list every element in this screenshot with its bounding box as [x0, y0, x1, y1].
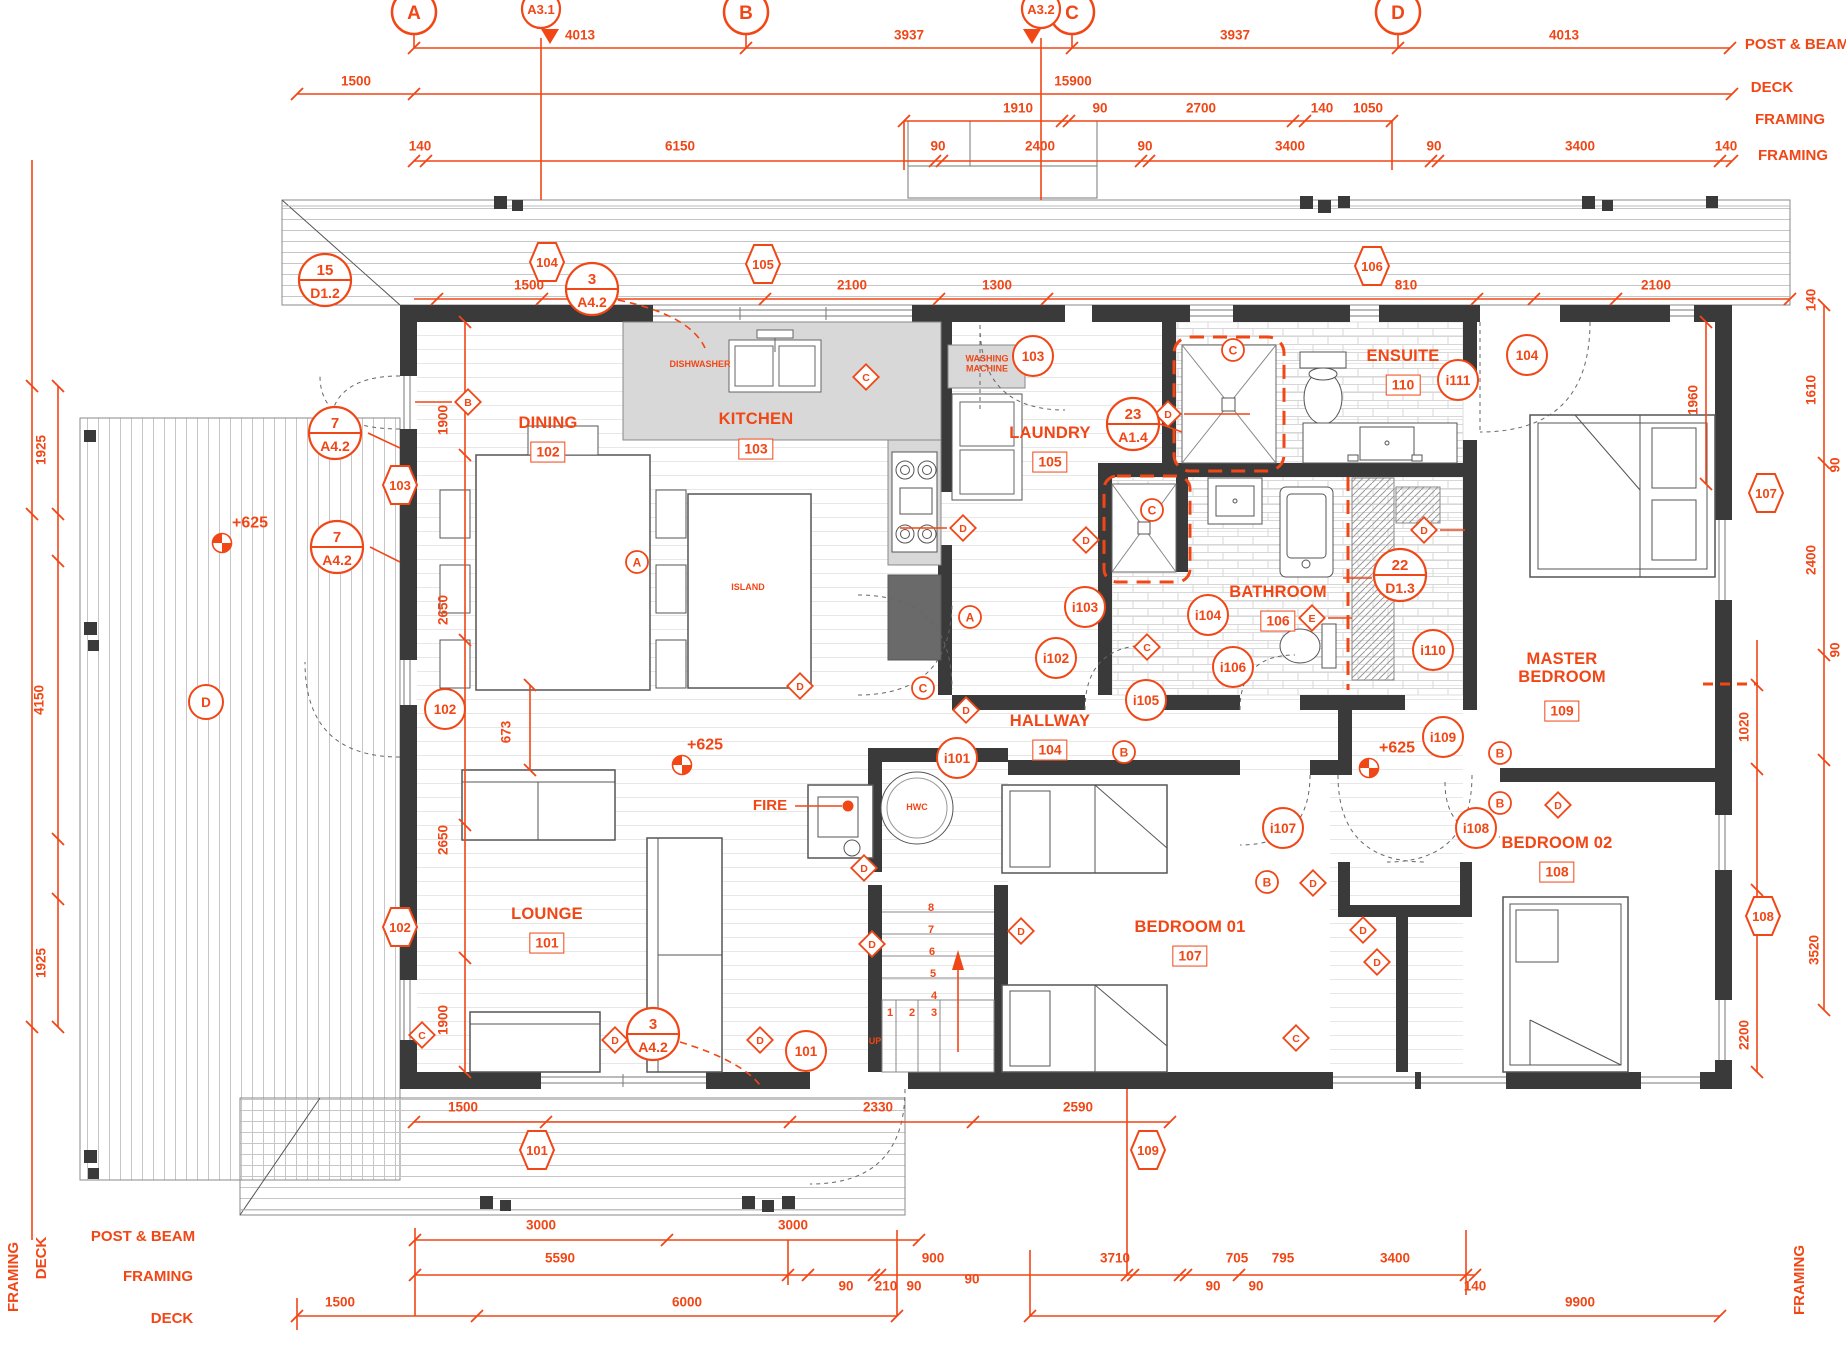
tag-hex-104: 104	[528, 241, 566, 283]
label-deck: DECK	[151, 1311, 194, 1327]
dim-140: 140	[1715, 140, 1738, 155]
dim-3400: 3400	[1275, 140, 1305, 155]
dim-4150: 4150	[33, 685, 48, 715]
tag-diamond-b: B	[453, 387, 483, 417]
svg-text:D: D	[611, 1035, 619, 1047]
dim-5590: 5590	[545, 1252, 575, 1267]
svg-text:C: C	[1148, 504, 1157, 518]
dim-1925: 1925	[35, 948, 50, 978]
dim-795: 795	[1272, 1252, 1295, 1267]
room-number-101: 101	[529, 933, 564, 954]
dim-2650: 2650	[437, 825, 452, 855]
svg-text:D: D	[1017, 926, 1025, 938]
dim-90: 90	[1829, 642, 1844, 657]
dim-90: 90	[1829, 457, 1844, 472]
tag-circle-i103: i103	[1063, 585, 1107, 629]
detail-bubble-22-d1-3: 22D1.3	[1371, 546, 1429, 604]
tag-hex-109: 109	[1129, 1129, 1167, 1171]
tag-diamond-c: C	[851, 362, 881, 392]
svg-text:D: D	[796, 681, 804, 693]
tag-diamond-d: D	[857, 929, 887, 959]
label-dishwasher: DISHWASHER	[669, 360, 730, 370]
svg-text:A3.1: A3.1	[527, 2, 554, 17]
detail-bubble-15-d1-2: 15D1.2	[296, 251, 354, 309]
tag-diamond-d: D	[745, 1025, 775, 1055]
svg-text:D: D	[959, 523, 967, 535]
floor-plan-drawing: ABCDA3.1A3.24013393739374013150015900191…	[0, 0, 1846, 1356]
label-8: 8	[928, 903, 934, 915]
tag-circle-i110: i110	[1411, 628, 1455, 672]
svg-text:C: C	[1292, 1033, 1300, 1045]
tag-diamond-e: E	[1297, 603, 1327, 633]
svg-text:103: 103	[389, 478, 411, 493]
dim-705: 705	[1226, 1252, 1249, 1267]
dim-90: 90	[906, 1280, 921, 1295]
room-label-laundry: LAUNDRY	[1009, 425, 1090, 443]
svg-text:i110: i110	[1420, 643, 1446, 658]
svg-text:B: B	[1263, 876, 1272, 890]
label-1: 1	[887, 1008, 893, 1020]
room-number-102: 102	[530, 442, 565, 463]
grid-bubble-b: B	[721, 0, 771, 37]
room-label-ensuite: ENSUITE	[1367, 348, 1440, 366]
dim-1500: 1500	[341, 75, 371, 90]
tag-diamond-d: D	[1409, 515, 1439, 545]
detail-bubble-3-a4-2: 3A4.2	[563, 260, 621, 318]
dim-90: 90	[1426, 140, 1441, 155]
dim-673: 673	[500, 721, 515, 744]
grid-bubble-a: A	[389, 0, 439, 37]
dim-90: 90	[930, 140, 945, 155]
dim-1300: 1300	[982, 279, 1012, 294]
level-marker-icon	[670, 753, 694, 777]
label-4: 4	[931, 991, 937, 1003]
svg-text:A: A	[633, 556, 642, 570]
dim-1500: 1500	[325, 1296, 355, 1311]
room-label-hallway: HALLWAY	[1010, 713, 1091, 731]
svg-text:A3.2: A3.2	[1027, 2, 1054, 17]
svg-text:D: D	[1359, 925, 1367, 937]
level-marker-icon	[1357, 756, 1381, 780]
dim-2590: 2590	[1063, 1101, 1093, 1116]
tag-circle-i111: i111	[1436, 358, 1480, 402]
dim-15900: 15900	[1054, 75, 1092, 90]
tag-circle-i109: i109	[1421, 715, 1465, 759]
detail-bubble-7-a4-2: 7A4.2	[308, 518, 366, 576]
dim-90: 90	[1205, 1280, 1220, 1295]
dim-90: 90	[1137, 140, 1152, 155]
dim-2100: 2100	[1641, 279, 1671, 294]
dim-140: 140	[409, 140, 432, 155]
svg-text:D: D	[1164, 409, 1172, 421]
room-label-bedroom-01: BEDROOM 01	[1134, 919, 1245, 937]
svg-text:B: B	[739, 3, 753, 24]
svg-text:i107: i107	[1270, 821, 1296, 836]
tag-diamond-d: D	[1362, 947, 1392, 977]
svg-text:D: D	[860, 863, 868, 875]
dim-1900: 1900	[437, 1005, 452, 1035]
grid-bubble-d: D	[1373, 0, 1423, 37]
label-post-beam: POST & BEAM	[1745, 37, 1846, 53]
dim-1610: 1610	[1805, 375, 1820, 405]
svg-text:101: 101	[795, 1044, 818, 1059]
tag-letter-c: C	[910, 675, 936, 701]
svg-text:3: 3	[588, 271, 596, 288]
dim-1020: 1020	[1738, 712, 1753, 742]
tag-diamond-d: D	[1298, 868, 1328, 898]
label-hwc: HWC	[906, 803, 928, 813]
label-deck: DECK	[34, 1237, 50, 1280]
svg-text:105: 105	[752, 257, 774, 272]
tag-diamond-d: D	[1071, 525, 1101, 555]
svg-text:104: 104	[1516, 348, 1539, 363]
tag-letter-b: B	[1111, 739, 1137, 765]
svg-text:A: A	[966, 611, 975, 625]
svg-text:D: D	[756, 1035, 764, 1047]
room-number-110: 110	[1386, 375, 1421, 396]
svg-text:22: 22	[1392, 557, 1409, 574]
svg-text:C: C	[919, 682, 928, 696]
dim-3400: 3400	[1565, 140, 1595, 155]
svg-text:D: D	[1391, 3, 1405, 24]
svg-text:i103: i103	[1072, 600, 1099, 615]
dim-90: 90	[1092, 102, 1107, 117]
dim-90: 90	[964, 1273, 979, 1288]
tag-diamond-d: D	[1006, 916, 1036, 946]
tag-circle-102: 102	[423, 687, 467, 731]
tag-hex-108: 108	[1744, 895, 1782, 937]
dim-2400: 2400	[1805, 545, 1820, 575]
tag-hex-106: 106	[1353, 245, 1391, 287]
tag-letter-a: A	[624, 549, 650, 575]
svg-text:D1.3: D1.3	[1385, 580, 1415, 596]
dim-2400: 2400	[1025, 140, 1055, 155]
dim-1960: 1960	[1687, 385, 1702, 415]
label-7: 7	[928, 925, 934, 937]
tag-letter-c: C	[1220, 337, 1246, 363]
svg-text:15: 15	[317, 262, 334, 279]
tag-letter-a: A	[957, 604, 983, 630]
detail-bubble-7-a4-2: 7A4.2	[306, 404, 364, 462]
svg-text:B: B	[1496, 747, 1505, 761]
room-number-104: 104	[1032, 740, 1067, 761]
tag-letter-b: B	[1254, 869, 1280, 895]
svg-text:A4.2: A4.2	[638, 1039, 668, 1055]
tag-letter-b: B	[1487, 740, 1513, 766]
tag-diamond-c: C	[407, 1020, 437, 1050]
detail-bubble-23-a1-4: 23A1.4	[1104, 395, 1162, 453]
dim-1500: 1500	[448, 1101, 478, 1116]
dim-210: 210	[875, 1280, 898, 1295]
tag-circle-104: 104	[1505, 333, 1549, 377]
room-number-105: 105	[1032, 452, 1067, 473]
svg-text:B: B	[1496, 797, 1505, 811]
svg-text:i111: i111	[1446, 373, 1471, 388]
svg-text:101: 101	[526, 1143, 548, 1158]
svg-text:C: C	[1143, 642, 1151, 654]
svg-text:i104: i104	[1195, 608, 1222, 623]
room-number-108: 108	[1539, 862, 1574, 883]
label-washing-machine: WASHING MACHINE	[965, 354, 1008, 373]
label-fire: FIRE	[753, 798, 787, 814]
dim-2330: 2330	[863, 1101, 893, 1116]
dim-90: 90	[838, 1280, 853, 1295]
tag-hex-102: 102	[381, 906, 419, 948]
svg-text:i108: i108	[1463, 821, 1490, 836]
svg-text:C: C	[1229, 344, 1238, 358]
level-marker-text: +625	[1379, 739, 1415, 756]
room-label-kitchen: KITCHEN	[719, 411, 794, 429]
room-number-109: 109	[1544, 701, 1579, 722]
svg-text:A4.2: A4.2	[577, 294, 607, 310]
label-6: 6	[929, 947, 935, 959]
room-label-lounge: LOUNGE	[511, 906, 583, 924]
dim-3937: 3937	[894, 29, 924, 44]
svg-text:i102: i102	[1043, 651, 1069, 666]
dim-3400: 3400	[1380, 1252, 1410, 1267]
level-marker-icon	[210, 531, 234, 555]
level-marker-text: +625	[687, 736, 723, 753]
label-island: ISLAND	[731, 583, 765, 593]
tag-diamond-d: D	[951, 695, 981, 725]
dim-900: 900	[922, 1252, 945, 1267]
label-3: 3	[931, 1008, 937, 1020]
room-label-bathroom: BATHROOM	[1229, 584, 1327, 602]
label-up: UP	[869, 1037, 882, 1047]
label-2: 2	[909, 1008, 915, 1020]
svg-text:A1.4: A1.4	[1118, 429, 1148, 445]
section-marker-a3-2: A3.2	[1019, 0, 1063, 47]
room-number-103: 103	[738, 439, 773, 460]
tag-letter-b: B	[1487, 790, 1513, 816]
svg-text:102: 102	[389, 920, 411, 935]
label-post-beam: POST & BEAM	[91, 1229, 195, 1245]
svg-text:D: D	[1309, 878, 1317, 890]
label-framing: FRAMING	[123, 1269, 193, 1285]
dim-2100: 2100	[837, 279, 867, 294]
svg-text:109: 109	[1137, 1143, 1159, 1158]
tag-circle-d: D	[187, 683, 225, 721]
label-framing: FRAMING	[1792, 1245, 1808, 1315]
svg-text:C: C	[418, 1030, 426, 1042]
tag-diamond-c: C	[1281, 1023, 1311, 1053]
svg-text:A: A	[407, 3, 421, 24]
tag-circle-103: 103	[1011, 334, 1055, 378]
svg-text:108: 108	[1752, 909, 1774, 924]
svg-text:23: 23	[1125, 406, 1142, 423]
svg-text:107: 107	[1755, 486, 1777, 501]
tag-hex-107: 107	[1747, 472, 1785, 514]
dim-2650: 2650	[437, 595, 452, 625]
svg-text:A4.2: A4.2	[320, 438, 350, 454]
level-marker-text: +625	[232, 514, 268, 531]
tag-hex-105: 105	[744, 243, 782, 285]
svg-text:D: D	[962, 705, 970, 717]
dim-1910: 1910	[1003, 102, 1033, 117]
dim-2700: 2700	[1186, 102, 1216, 117]
svg-text:D: D	[1082, 535, 1090, 547]
dim-3000: 3000	[526, 1219, 556, 1234]
dim-2200: 2200	[1738, 1020, 1753, 1050]
svg-text:103: 103	[1022, 349, 1045, 364]
svg-text:D: D	[868, 939, 876, 951]
svg-text:7: 7	[333, 529, 341, 546]
svg-text:C: C	[1065, 3, 1079, 24]
tag-letter-c: C	[1139, 497, 1165, 523]
tag-diamond-c: C	[1132, 632, 1162, 662]
dim-9900: 9900	[1565, 1296, 1595, 1311]
dim-1925: 1925	[35, 435, 50, 465]
label-framing: FRAMING	[1758, 148, 1828, 164]
dim-3710: 3710	[1100, 1252, 1130, 1267]
dim-3000: 3000	[778, 1219, 808, 1234]
svg-text:i109: i109	[1430, 730, 1456, 745]
dim-140: 140	[1805, 289, 1820, 312]
dim-810: 810	[1395, 279, 1418, 294]
label-framing: FRAMING	[1755, 112, 1825, 128]
dim-90: 90	[1248, 1280, 1263, 1295]
tag-circle-i102: i102	[1034, 636, 1078, 680]
label-deck: DECK	[1751, 80, 1794, 96]
svg-text:104: 104	[536, 255, 558, 270]
dim-3520: 3520	[1808, 935, 1823, 965]
dim-140: 140	[1464, 1280, 1487, 1295]
dim-4013: 4013	[1549, 29, 1579, 44]
dim-4013: 4013	[565, 29, 595, 44]
tag-circle-i107: i107	[1261, 806, 1305, 850]
svg-text:7: 7	[331, 415, 339, 432]
tag-diamond-d: D	[1348, 915, 1378, 945]
room-number-107: 107	[1172, 946, 1207, 967]
room-label-bedroom-02: BEDROOM 02	[1501, 835, 1612, 853]
tag-diamond-d: D	[849, 853, 879, 883]
dim-1050: 1050	[1353, 102, 1383, 117]
svg-text:i106: i106	[1220, 660, 1247, 675]
svg-text:i105: i105	[1133, 693, 1160, 708]
tag-circle-i105: i105	[1124, 678, 1168, 722]
svg-text:3: 3	[649, 1016, 657, 1033]
tag-hex-103: 103	[381, 464, 419, 506]
label-framing: FRAMING	[6, 1242, 22, 1312]
svg-text:D1.2: D1.2	[310, 285, 340, 301]
tag-diamond-d: D	[785, 671, 815, 701]
svg-text:D: D	[1554, 800, 1562, 812]
dim-1900: 1900	[437, 405, 452, 435]
dim-6000: 6000	[672, 1296, 702, 1311]
tag-circle-i101: i101	[935, 736, 979, 780]
annotation-layer: ABCDA3.1A3.24013393739374013150015900191…	[0, 0, 1846, 1356]
svg-text:A4.2: A4.2	[322, 552, 352, 568]
svg-text:i101: i101	[944, 751, 971, 766]
dim-6150: 6150	[665, 140, 695, 155]
tag-diamond-d: D	[1543, 790, 1573, 820]
tag-circle-i106: i106	[1211, 645, 1255, 689]
tag-diamond-d: D	[948, 513, 978, 543]
svg-text:D: D	[1373, 957, 1381, 969]
room-number-106: 106	[1260, 611, 1295, 632]
svg-text:D: D	[1420, 525, 1428, 537]
tag-circle-i104: i104	[1186, 593, 1230, 637]
tag-circle-101: 101	[784, 1029, 828, 1073]
section-marker-a3-1: A3.1	[519, 0, 563, 47]
label-5: 5	[930, 969, 936, 981]
dim-3937: 3937	[1220, 29, 1250, 44]
room-label-dining: DINING	[519, 415, 578, 433]
svg-text:C: C	[862, 372, 870, 384]
dim-140: 140	[1311, 102, 1334, 117]
svg-text:B: B	[464, 397, 472, 409]
svg-text:B: B	[1120, 746, 1129, 760]
detail-bubble-3-a4-2: 3A4.2	[624, 1005, 682, 1063]
svg-text:102: 102	[434, 702, 457, 717]
svg-text:E: E	[1308, 613, 1315, 625]
room-label-master-bedroom: MASTER BEDROOM	[1518, 651, 1606, 687]
svg-text:106: 106	[1361, 259, 1383, 274]
tag-hex-101: 101	[518, 1129, 556, 1171]
svg-text:D: D	[201, 695, 211, 710]
